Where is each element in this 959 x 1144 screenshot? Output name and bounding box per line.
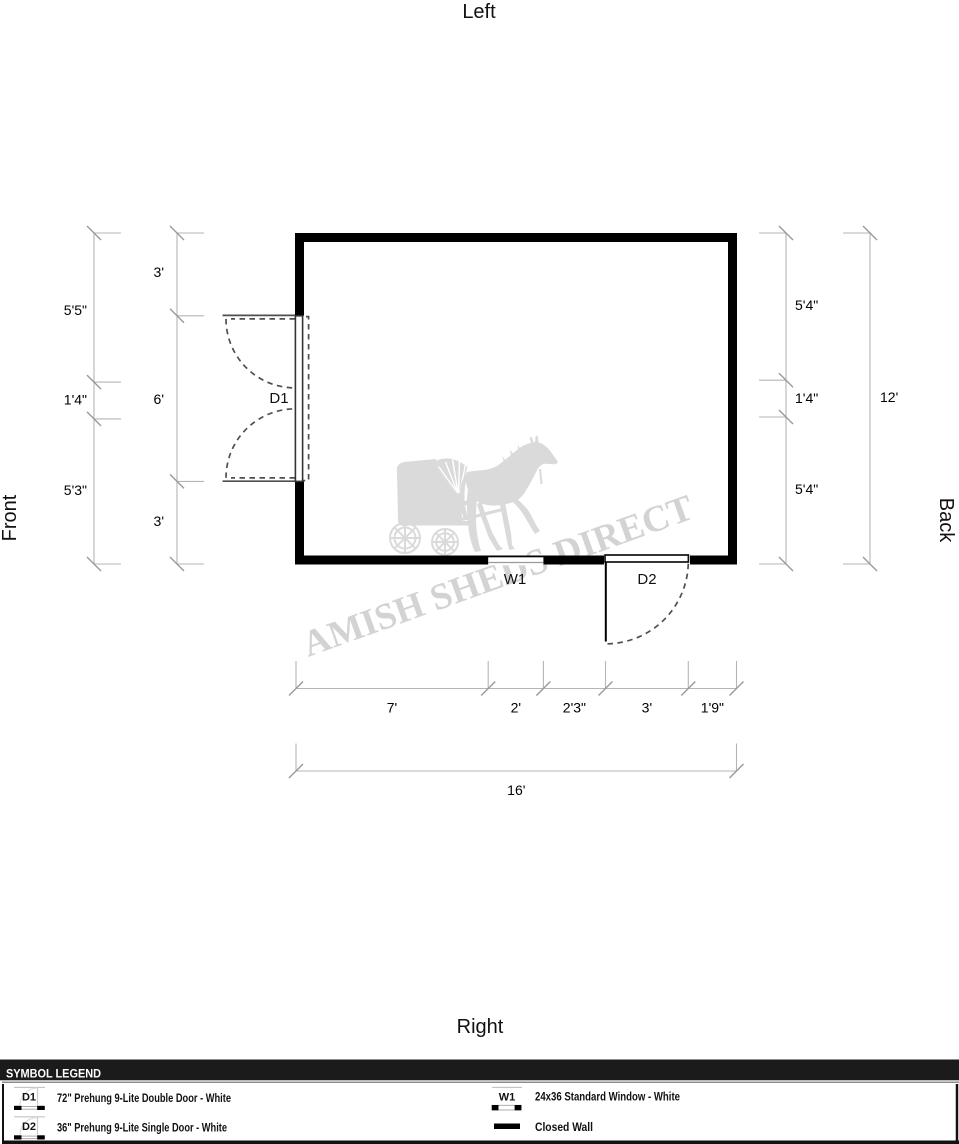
svg-text:36" Prehung 9-Lite Single Door: 36" Prehung 9-Lite Single Door - White [57, 1121, 227, 1135]
svg-text:3': 3' [642, 700, 652, 716]
svg-text:SYMBOL LEGEND: SYMBOL LEGEND [6, 1067, 101, 1081]
svg-text:1'4": 1'4" [64, 392, 87, 408]
svg-text:3': 3' [154, 264, 164, 280]
svg-text:D1: D1 [269, 390, 288, 407]
svg-text:1'9": 1'9" [701, 700, 724, 716]
svg-text:Left: Left [462, 1, 496, 23]
svg-text:24x36 Standard Window - White: 24x36 Standard Window - White [535, 1090, 680, 1104]
svg-text:16': 16' [507, 782, 525, 798]
svg-text:Back: Back [935, 498, 957, 543]
svg-text:2': 2' [511, 700, 521, 716]
svg-text:5'4": 5'4" [795, 481, 818, 497]
svg-text:1'4": 1'4" [795, 390, 818, 406]
svg-text:2'3": 2'3" [563, 700, 586, 716]
svg-text:6': 6' [154, 391, 164, 407]
svg-text:7': 7' [387, 700, 397, 716]
svg-text:W1: W1 [504, 571, 527, 588]
svg-text:D2: D2 [637, 571, 656, 588]
svg-text:D1: D1 [22, 1092, 36, 1104]
svg-text:3': 3' [154, 513, 164, 529]
svg-text:5'3": 5'3" [64, 482, 87, 498]
svg-text:Closed Wall: Closed Wall [535, 1120, 593, 1134]
svg-text:Front: Front [0, 494, 21, 541]
svg-text:72" Prehung 9-Lite Double Door: 72" Prehung 9-Lite Double Door - White [57, 1091, 231, 1105]
svg-text:Right: Right [457, 1016, 504, 1038]
svg-text:5'4": 5'4" [795, 297, 818, 313]
svg-text:12': 12' [880, 389, 898, 405]
svg-text:D2: D2 [22, 1121, 36, 1133]
svg-text:5'5": 5'5" [64, 302, 87, 318]
svg-text:W1: W1 [499, 1092, 516, 1104]
